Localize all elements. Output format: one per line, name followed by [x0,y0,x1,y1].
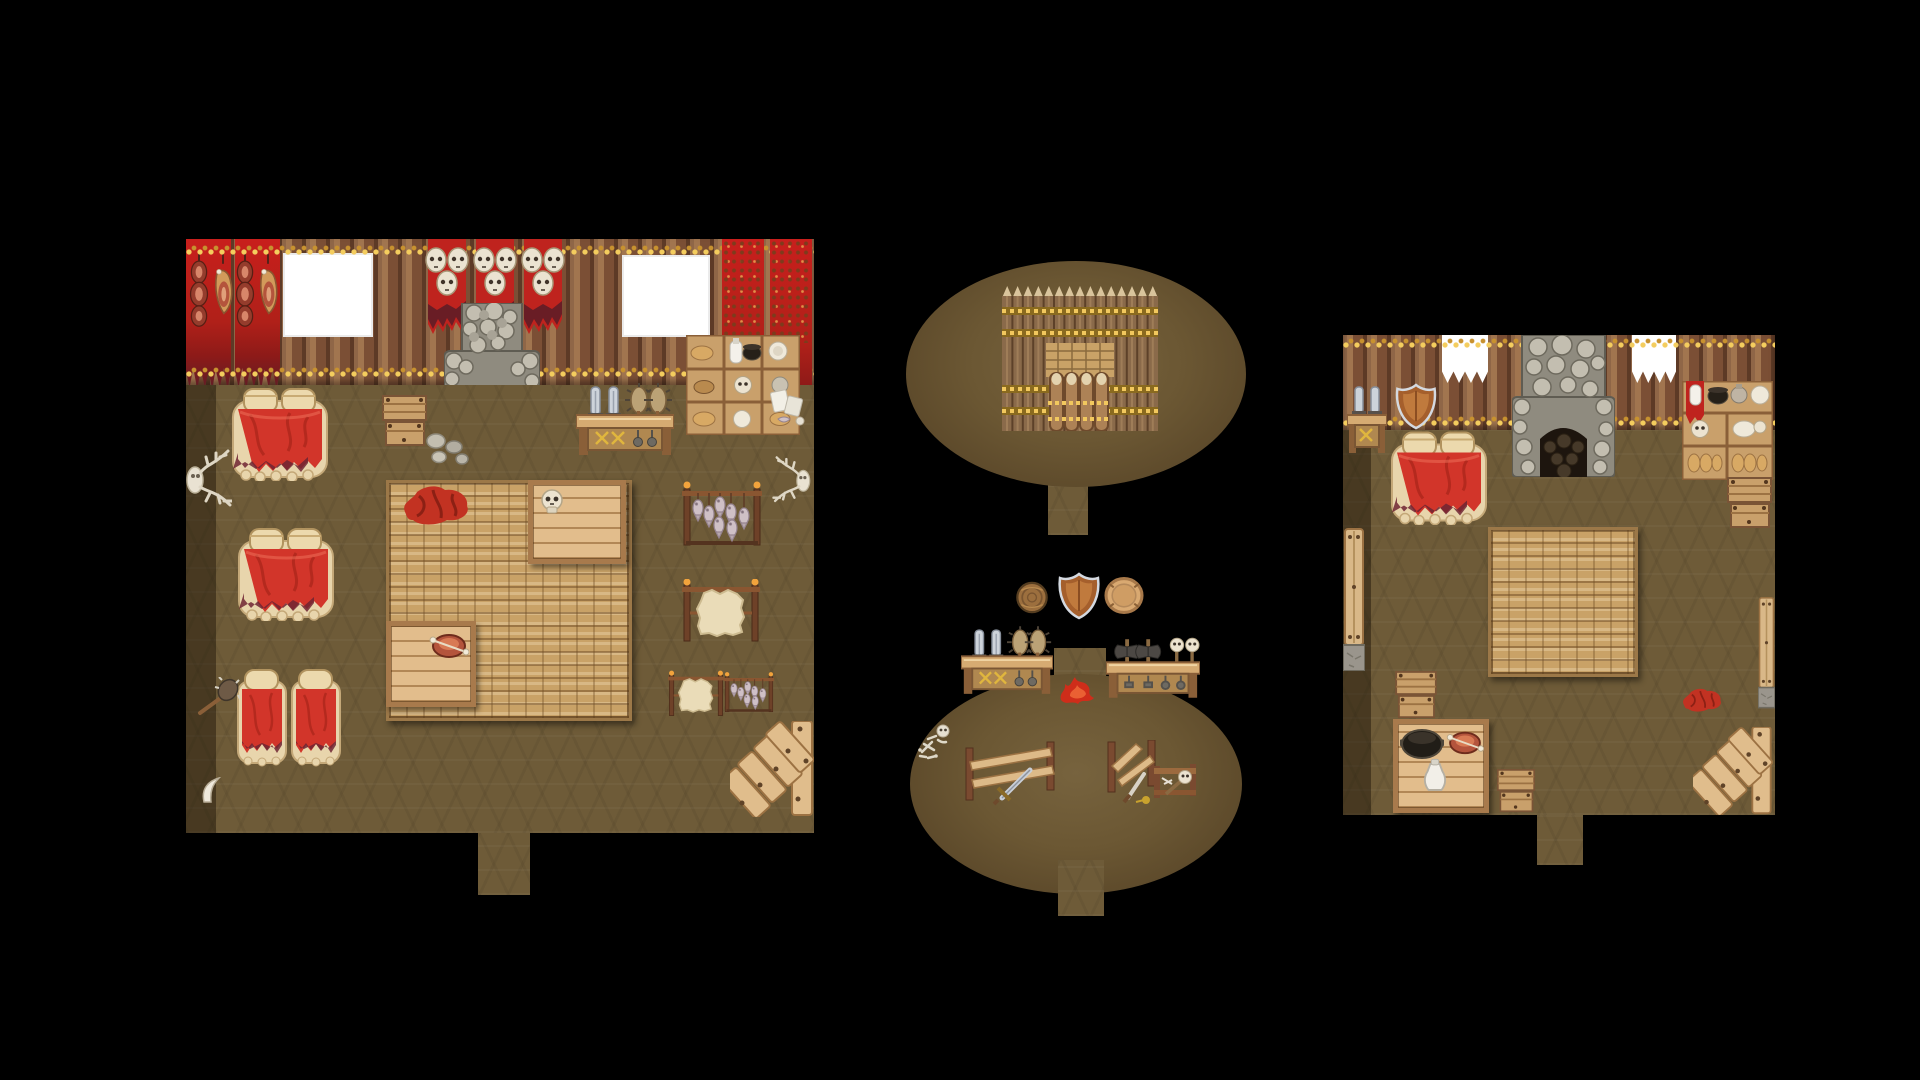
double-bed-icon [236,525,336,621]
toppled-bench-with-dagger-icon [1106,740,1158,806]
wall-bench-icon [1343,527,1365,671]
wooden-crate-icon [382,387,427,455]
roast-meat-icon [429,630,469,660]
curtain-pattern [770,239,812,343]
jug-icon [1422,758,1448,794]
papers-and-fish-icon [770,387,808,429]
drawer-chest-icon [1497,767,1535,815]
wall-bench-icon [1758,580,1775,724]
copper-heater-shield-icon [1056,572,1102,620]
curtain-pattern [722,239,764,343]
map-palisade-yard[interactable] [906,259,1246,489]
spiked-palisade-icon [1002,285,1158,431]
sword-rack-icon [1347,385,1387,455]
double-bed-icon [230,385,330,481]
antler-trophy-icon [770,451,814,509]
map-weapon-yard[interactable] [906,570,1246,918]
deer-skull-trophy-icon [186,443,232,515]
roast-meat-icon [1446,728,1484,756]
stones-icon [424,431,474,467]
hide-drying-rack-icon [668,669,724,719]
weapon-counter-icon [576,383,674,457]
stone-fireplace-icon [1512,335,1615,477]
drinking-horn-icon [200,777,222,803]
small-crate-icon [1395,671,1437,719]
tan-round-shield-icon [1104,577,1144,614]
single-bed-icon [236,667,288,767]
red-cloth-icon [398,482,474,528]
kitchen-table [1393,719,1489,813]
toppled-bench-with-sword-icon [964,740,1056,806]
round-wooden-shield-icon [1016,580,1048,615]
red-cloth-icon [1680,681,1724,719]
woven-rug [1488,527,1638,677]
axe-counter-icon [1106,636,1200,700]
crate-stack-icon [1727,477,1772,529]
hanging-ham-icon [256,245,280,337]
table-with-roast [386,621,476,707]
sword-counter-icon [961,624,1053,698]
skull-icon [539,489,565,515]
door-gap[interactable] [478,833,530,895]
window [283,253,373,337]
tilemap-scene [0,0,1920,1080]
map-great-hall[interactable] [186,239,814,833]
campfire-icon [1058,674,1098,708]
single-bed-icon [290,667,342,767]
plank-stairs[interactable] [1693,727,1775,815]
hide-drying-rack-icon [682,579,760,643]
spiked-club-icon [192,677,240,719]
door-gap[interactable] [1537,815,1583,865]
skeleton-remains-icon [914,722,954,762]
table-with-skull [528,480,626,564]
copper-heater-shield-icon [1393,383,1439,430]
window [622,255,710,337]
fish-drying-rack-icon [682,481,762,549]
skull-mace-rack-icon [1152,760,1198,800]
hanging-ham-icon [211,245,235,337]
fish-drying-rack-icon [724,667,774,719]
cauldron-icon [1400,726,1444,760]
supply-shelf-icon [1682,381,1773,480]
plank-stairs[interactable] [730,721,814,817]
map-small-hut[interactable] [1343,335,1775,815]
south-path[interactable] [1058,860,1104,916]
double-bed-icon [1389,428,1489,525]
